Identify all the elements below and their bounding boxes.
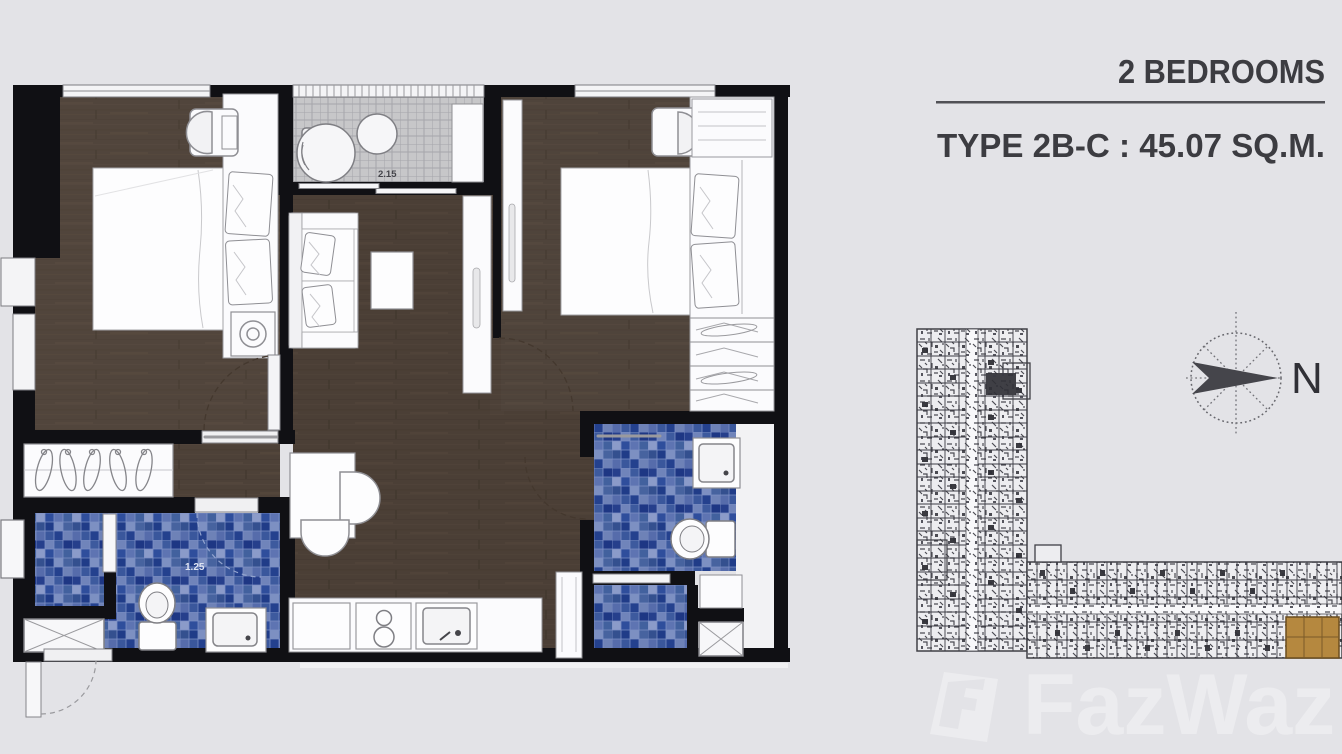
svg-text:1.25: 1.25 — [185, 562, 205, 573]
svg-text:2.15: 2.15 — [378, 169, 397, 180]
svg-text:FazWaz: FazWaz — [1023, 657, 1335, 753]
svg-text:TYPE 2B-C : 45.07 SQ.M.: TYPE 2B-C : 45.07 SQ.M. — [937, 127, 1325, 164]
svg-text:2 BEDROOMS: 2 BEDROOMS — [1118, 53, 1325, 90]
svg-text:N: N — [1291, 354, 1323, 403]
